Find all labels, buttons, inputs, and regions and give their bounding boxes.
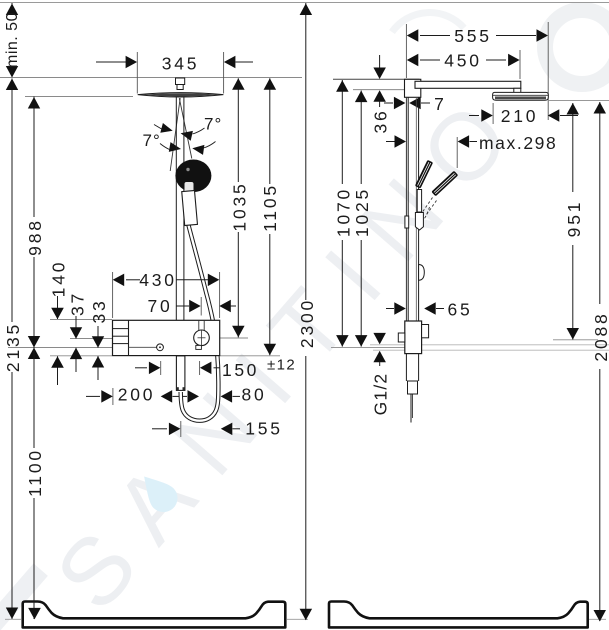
svg-text:1025: 1025 — [352, 187, 372, 237]
svg-text:max.298: max.298 — [479, 133, 557, 153]
svg-text:70: 70 — [147, 296, 172, 316]
svg-text:430: 430 — [139, 270, 177, 290]
svg-text:1035: 1035 — [229, 181, 249, 231]
svg-text:36: 36 — [371, 108, 391, 133]
svg-text:450: 450 — [444, 51, 482, 71]
svg-text:200: 200 — [118, 385, 156, 405]
svg-text:7°: 7° — [143, 131, 161, 150]
svg-text:2088: 2088 — [591, 311, 609, 361]
svg-text:7°: 7° — [204, 115, 222, 134]
svg-text:210: 210 — [501, 106, 539, 126]
svg-text:150: 150 — [222, 360, 259, 380]
svg-text:±12: ±12 — [267, 357, 296, 374]
svg-text:555: 555 — [454, 26, 492, 46]
svg-text:7: 7 — [434, 94, 444, 114]
svg-text:min. 50: min. 50 — [4, 12, 21, 68]
svg-text:140: 140 — [49, 260, 69, 298]
svg-text:2300: 2300 — [297, 298, 317, 348]
svg-text:1105: 1105 — [260, 183, 280, 232]
svg-text:951: 951 — [564, 200, 584, 238]
svg-text:988: 988 — [25, 218, 45, 256]
svg-text:1070: 1070 — [333, 187, 353, 237]
svg-text:345: 345 — [162, 54, 200, 74]
svg-text:33: 33 — [89, 298, 109, 323]
svg-text:G1/2: G1/2 — [371, 373, 391, 416]
svg-text:155: 155 — [245, 419, 283, 439]
svg-text:2135: 2135 — [3, 322, 23, 372]
svg-text:80: 80 — [241, 385, 266, 405]
svg-text:37: 37 — [68, 291, 88, 316]
svg-text:65: 65 — [447, 300, 472, 320]
svg-text:1100: 1100 — [25, 448, 45, 497]
